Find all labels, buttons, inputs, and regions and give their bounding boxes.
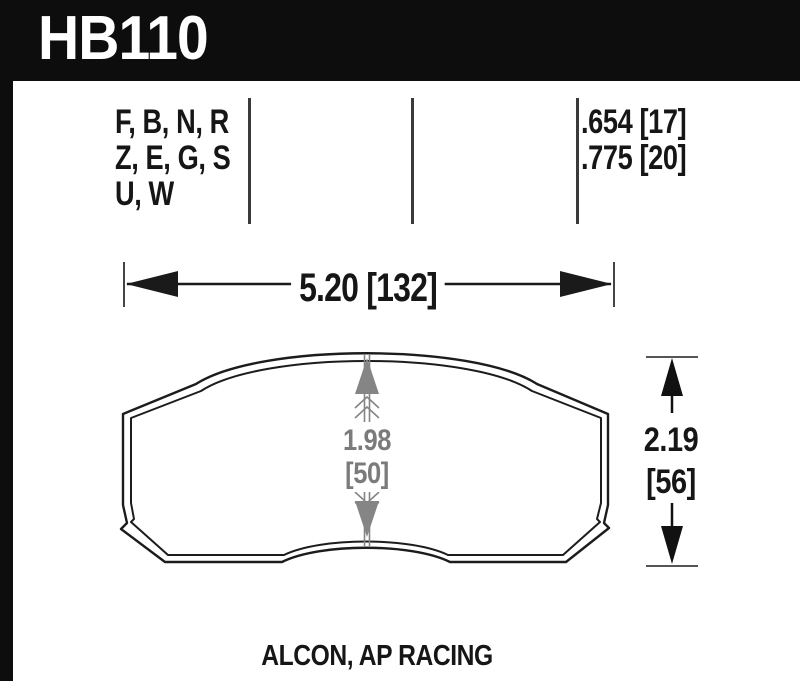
width-dimension-label: 5.20 [132] <box>291 266 445 310</box>
center-height-inches: 1.98 <box>343 424 391 457</box>
catalog-page: HB110 F, B, N, R Z, E, G, S U, W .654 [1… <box>0 0 800 691</box>
overall-height-inches: 2.19 <box>644 419 699 461</box>
center-height-label: 1.98 [50] <box>336 422 398 492</box>
overall-height-label: 2.19 [56] <box>644 419 699 503</box>
pad-technical-drawing <box>0 0 800 691</box>
overall-height-millimeters: [56] <box>644 461 699 503</box>
applications-caption: ALCON, AP RACING <box>261 640 492 673</box>
center-height-millimeters: [50] <box>343 457 391 490</box>
